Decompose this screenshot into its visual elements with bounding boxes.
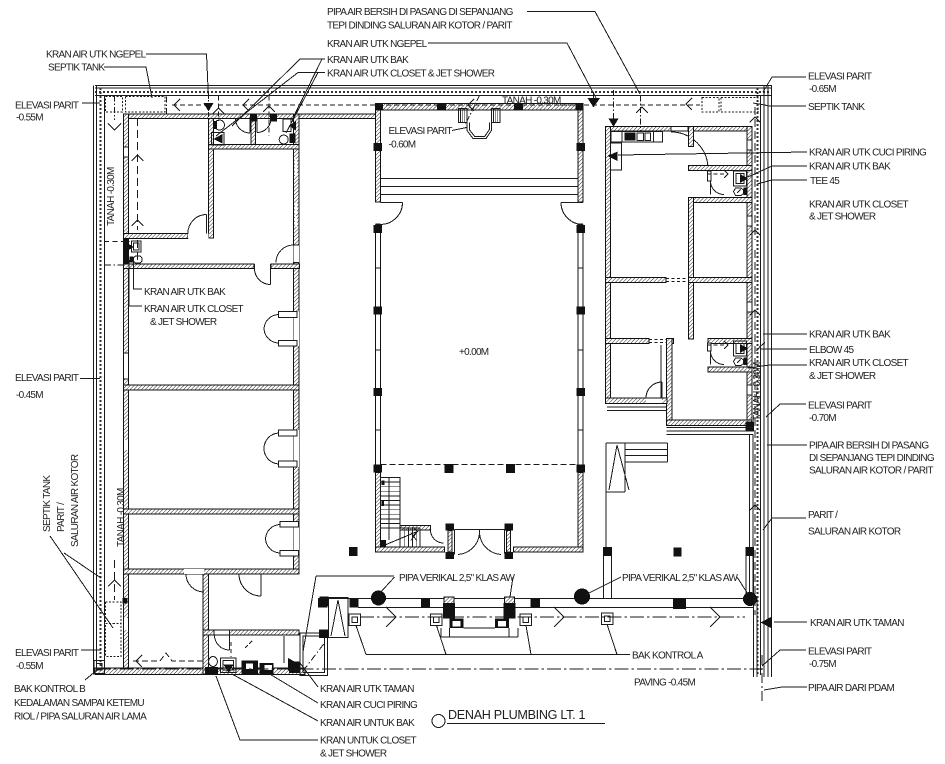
svg-text:KRAN AIR UTK NGEPEL: KRAN AIR UTK NGEPEL (46, 50, 147, 61)
svg-text:ELEVASI PARIT: ELEVASI PARIT (808, 647, 872, 658)
svg-text:KRAN UNTUK CLOSET: KRAN UNTUK CLOSET (320, 736, 416, 747)
svg-text:ELEVASI PARIT: ELEVASI PARIT (808, 72, 872, 83)
svg-text:KRAN AIR UTK NGEPEL: KRAN AIR UTK NGEPEL (327, 39, 428, 50)
svg-text:-0.45M: -0.45M (16, 390, 43, 401)
svg-text:PAVING -0.45M: PAVING -0.45M (634, 678, 695, 689)
svg-text:KRAN AIR UTK TAMAN: KRAN AIR UTK TAMAN (320, 684, 414, 695)
svg-text:TANAH -0.30M: TANAH -0.30M (502, 96, 561, 107)
svg-text:-0.75M: -0.75M (809, 659, 836, 670)
svg-text:SALURAN AIR KOTOR: SALURAN AIR KOTOR (70, 454, 81, 547)
svg-text:ELEVASI PARIT: ELEVASI PARIT (15, 101, 79, 112)
svg-text:-0.70M: -0.70M (809, 413, 836, 424)
svg-text:SEPTIK TANK: SEPTIK TANK (808, 102, 865, 113)
svg-text:PARIT /: PARIT / (56, 502, 67, 532)
svg-text:ELBOW 45: ELBOW 45 (809, 345, 855, 356)
svg-text:KRAN AIR UTK BAK: KRAN AIR UTK BAK (144, 287, 226, 298)
svg-text:PIPA AIR DARI PDAM: PIPA AIR DARI PDAM (808, 683, 895, 694)
svg-text:PARIT /: PARIT / (808, 510, 838, 521)
svg-text:& JET SHOWER: & JET SHOWER (320, 749, 387, 760)
svg-text:TANAH -0.30M: TANAH -0.30M (116, 488, 127, 547)
svg-text:PIPA VERIKAL 2,5" KLAS AW: PIPA VERIKAL 2,5" KLAS AW (399, 573, 515, 584)
svg-text:-0.60M: -0.60M (389, 140, 416, 151)
svg-text:PIPA VERIKAL 2,5" KLAS AW: PIPA VERIKAL 2,5" KLAS AW (622, 573, 738, 584)
svg-text:KRAN AIR UTK TAMAN: KRAN AIR UTK TAMAN (810, 618, 904, 629)
svg-text:KRAN AIR UNTUK BAK: KRAN AIR UNTUK BAK (320, 718, 415, 729)
svg-text:TANAH -0.30M: TANAH -0.30M (752, 362, 763, 421)
svg-text:SEPTIK TANK: SEPTIK TANK (48, 63, 105, 74)
svg-text:& JET SHOWER: & JET SHOWER (809, 212, 876, 223)
svg-text:-0.65M: -0.65M (809, 84, 836, 95)
svg-text:TEPI DINDING SALURAN AIR KOTOR: TEPI DINDING SALURAN AIR KOTOR / PARIT (327, 21, 512, 32)
svg-text:BAK KONTROL B: BAK KONTROL B (14, 684, 86, 695)
svg-text:DENAH PLUMBING LT. 1: DENAH PLUMBING LT. 1 (448, 708, 586, 722)
svg-text:TANAH -0.30M: TANAH -0.30M (106, 167, 117, 226)
svg-text:& JET SHOWER: & JET SHOWER (150, 317, 217, 328)
svg-text:KRAN AIR UTK BAK: KRAN AIR UTK BAK (809, 330, 891, 341)
svg-text:DI SEPANJANG TEPI DINDING: DI SEPANJANG TEPI DINDING (809, 453, 935, 464)
svg-text:KRAN AIR UTK CLOSET: KRAN AIR UTK CLOSET (809, 358, 909, 369)
svg-text:PIPA AIR BERSIH DI PASANG DI: PIPA AIR BERSIH DI PASANG DI SEPANJANG (327, 7, 514, 18)
svg-text:KRAN AIR UTK BAK: KRAN AIR UTK BAK (327, 55, 409, 66)
svg-text:RIOL / PIPA SALURAN AIR LAMA: RIOL / PIPA SALURAN AIR LAMA (14, 712, 147, 723)
svg-text:KRAN AIR UTK CLOSET: KRAN AIR UTK CLOSET (144, 304, 244, 315)
svg-text:SEPTIK TANK: SEPTIK TANK (42, 475, 53, 532)
svg-text:SALURAN AIR KOTOR / PARIT: SALURAN AIR KOTOR / PARIT (809, 466, 933, 477)
svg-text:KRAN AIR UTK CLOSET & JET SHOW: KRAN AIR UTK CLOSET & JET SHOWER (327, 69, 495, 80)
svg-text:& JET SHOWER: & JET SHOWER (809, 371, 876, 382)
svg-text:KRAN AIR CUCI PIRING: KRAN AIR CUCI PIRING (320, 700, 418, 711)
svg-text:TEE 45: TEE 45 (810, 176, 840, 187)
svg-text:PIPA AIR BERSIH DI PASANG: PIPA AIR BERSIH DI PASANG (809, 441, 929, 452)
svg-text:+0.00M: +0.00M (459, 347, 489, 358)
svg-text:ELEVASI PARIT: ELEVASI PARIT (15, 648, 79, 659)
svg-text:SALURAN AIR KOTOR: SALURAN AIR KOTOR (808, 527, 901, 538)
svg-text:ELEVASI PARIT: ELEVASI PARIT (15, 373, 79, 384)
svg-text:KRAN AIR UTK BAK: KRAN AIR UTK BAK (809, 162, 891, 173)
svg-text:KRAN AIR UTK CLOSET: KRAN AIR UTK CLOSET (809, 200, 909, 211)
svg-text:-0.55M: -0.55M (16, 113, 43, 124)
svg-text:BAK KONTROL A: BAK KONTROL A (632, 651, 704, 662)
svg-text:ELEVASI PARIT: ELEVASI PARIT (389, 126, 453, 137)
svg-text:KRAN AIR UTK CUCI PIRING: KRAN AIR UTK CUCI PIRING (809, 148, 927, 159)
svg-text:ELEVASI PARIT: ELEVASI PARIT (808, 401, 872, 412)
svg-text:-0.55M: -0.55M (16, 661, 43, 672)
svg-text:KEDALAMAN SAMPAI KETEMU: KEDALAMAN SAMPAI KETEMU (14, 698, 144, 709)
